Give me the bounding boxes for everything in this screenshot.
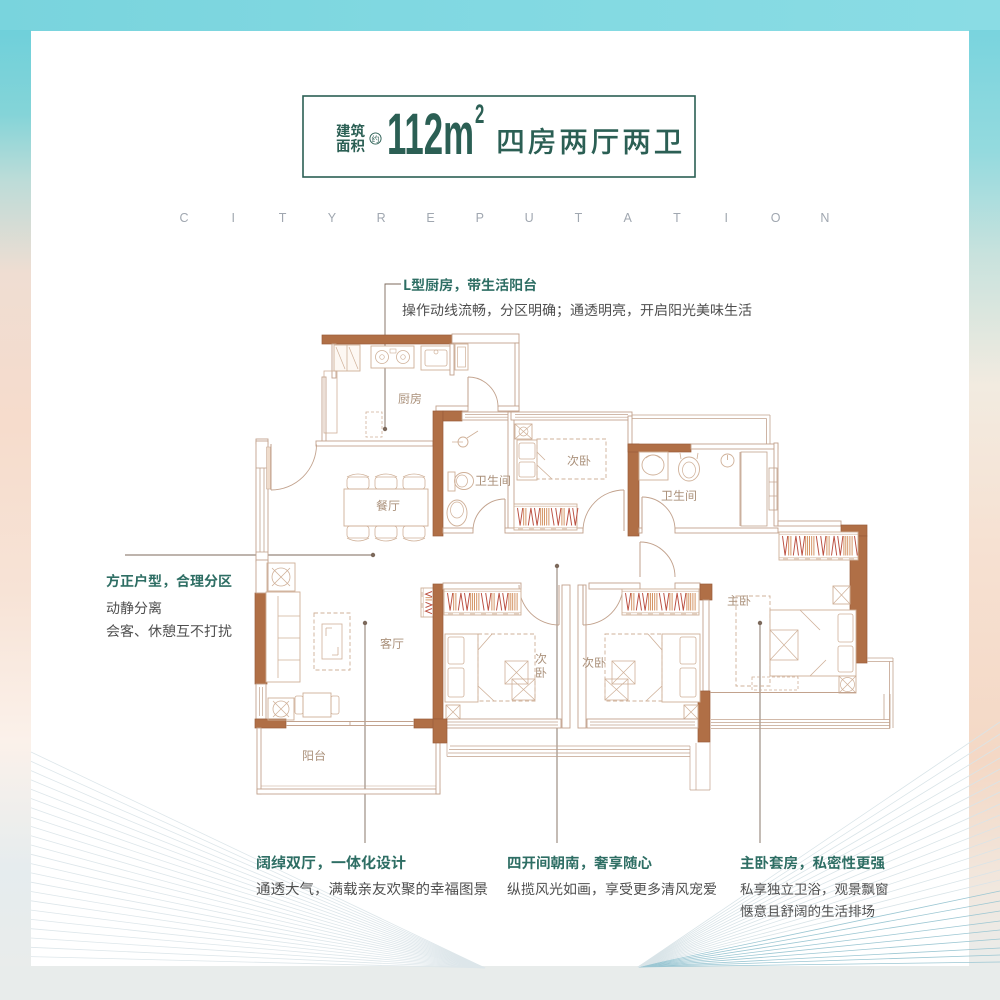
svg-text:O: O	[771, 211, 781, 225]
svg-text:E: E	[426, 211, 434, 225]
svg-text:I: I	[232, 211, 235, 225]
svg-text:T: T	[673, 211, 681, 225]
svg-text:2: 2	[475, 99, 484, 129]
svg-text:T: T	[575, 211, 583, 225]
svg-text:N: N	[820, 211, 829, 225]
svg-text:C: C	[179, 211, 188, 225]
svg-text:R: R	[377, 211, 386, 225]
svg-text:Y: Y	[328, 211, 337, 225]
svg-text:P: P	[476, 211, 484, 225]
svg-text:112m: 112m	[387, 103, 474, 167]
svg-text:U: U	[525, 211, 534, 225]
svg-text:I: I	[725, 211, 728, 225]
svg-text:A: A	[624, 211, 633, 225]
svg-text:T: T	[279, 211, 287, 225]
